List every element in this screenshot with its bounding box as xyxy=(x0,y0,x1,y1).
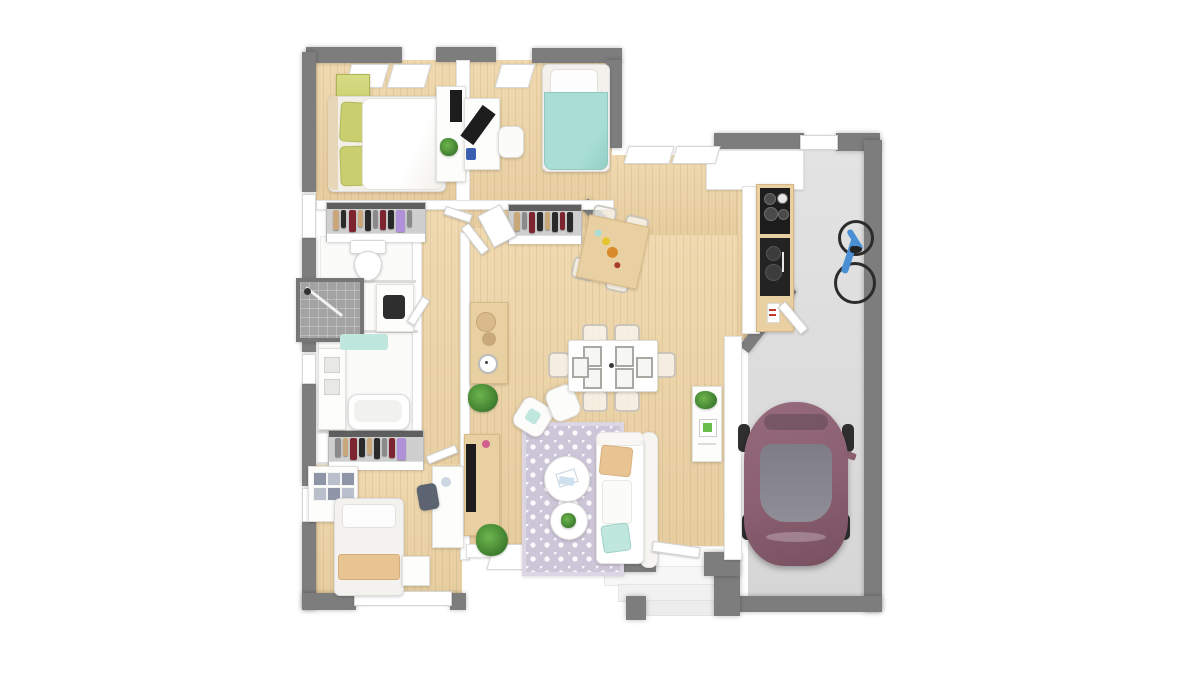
sideboard-frame xyxy=(699,419,717,437)
wall-garage-bottom xyxy=(738,596,882,612)
hall-decor-vase-1 xyxy=(476,312,496,332)
coffee-table-small xyxy=(550,502,588,540)
food-yellow xyxy=(601,237,610,246)
living-plant xyxy=(476,524,508,556)
dining-chair-bottom-2 xyxy=(614,390,640,412)
bathtub-basin xyxy=(354,400,402,422)
vanity-sink-2 xyxy=(324,379,340,395)
bedroom2-chair xyxy=(498,126,524,158)
window-living-north-2 xyxy=(671,146,720,164)
window-garage-north xyxy=(800,135,838,150)
sink-basin-2 xyxy=(765,264,782,281)
dining-chair-bottom-1 xyxy=(582,390,608,412)
wall-bath-hallway xyxy=(412,236,422,436)
wardrobe-bedroom2 xyxy=(508,204,582,244)
wardrobe-master xyxy=(326,202,426,242)
bedroom3-nightstand xyxy=(402,556,430,586)
porch-step-3 xyxy=(634,600,718,616)
dining-sideboard xyxy=(692,386,722,462)
place-setting-4 xyxy=(615,368,634,389)
window-left-wc xyxy=(302,194,316,238)
bedroom3-pillow xyxy=(342,504,396,528)
wall-garage-right xyxy=(864,140,882,612)
kitchen-sink xyxy=(760,238,790,296)
master-desk-plant xyxy=(440,138,458,156)
place-setting-2 xyxy=(615,346,634,367)
washing-machine-door xyxy=(383,295,405,319)
bathroom-vanity xyxy=(318,348,346,430)
car-rear-window xyxy=(764,414,828,430)
sideboard-plant xyxy=(695,391,717,409)
wall-top-garage-1 xyxy=(714,133,804,149)
bedroom3-chair xyxy=(416,482,440,511)
hall-plant xyxy=(468,384,498,412)
bedroom2-teal-duvet xyxy=(544,92,608,170)
coffee-table-large xyxy=(544,456,590,502)
bicycle-seat xyxy=(850,246,862,253)
wardrobe-bedroom2-back xyxy=(509,205,581,211)
wardrobe-bedroom3-back xyxy=(329,431,423,437)
car-body xyxy=(744,402,848,566)
master-bed-headboard xyxy=(328,96,338,190)
kitchen-breakfast-table xyxy=(576,214,650,289)
shower-head xyxy=(304,288,311,295)
bathtub xyxy=(348,394,410,430)
teal-bath-mat xyxy=(340,334,388,350)
car-hood-highlight xyxy=(766,532,826,542)
sofa-cushion-white xyxy=(602,480,632,524)
car-glasshouse xyxy=(760,444,832,522)
wall-top-1 xyxy=(306,47,402,63)
window-left-bath xyxy=(302,354,316,384)
bedroom2-laptop xyxy=(466,148,476,160)
dining-centerpiece xyxy=(609,363,614,368)
floor-plan-render xyxy=(0,0,1200,675)
master-bed-duvet xyxy=(362,98,444,190)
window-bedroom2 xyxy=(495,64,536,88)
bedroom3-desk-item xyxy=(441,477,451,487)
place-setting-5 xyxy=(572,357,589,378)
tv-console-flower xyxy=(482,440,490,448)
cooktop xyxy=(760,188,790,234)
tv xyxy=(466,444,476,512)
food-orange xyxy=(606,246,619,259)
wardrobe-bedroom2-ledge xyxy=(509,235,581,244)
hall-decor-vase-2 xyxy=(482,332,496,346)
wall-left-1 xyxy=(302,52,316,192)
hall-clock xyxy=(478,354,498,374)
wardrobe-bedroom3 xyxy=(328,430,424,470)
place-setting-6 xyxy=(636,357,653,378)
dining-chair-left xyxy=(548,352,570,378)
sink-faucet xyxy=(782,252,784,272)
wardrobe-master-back xyxy=(327,203,425,209)
hall-clock-center xyxy=(485,361,488,364)
food-teal-cup xyxy=(594,229,602,237)
coffee-table-plant xyxy=(561,513,576,528)
bedroom3-blanket xyxy=(338,554,400,580)
shower xyxy=(296,278,364,342)
bicycle-wheel-rear xyxy=(834,262,876,304)
washing-machine xyxy=(376,284,414,332)
porch-pillar xyxy=(626,596,646,620)
window-living-north-1 xyxy=(623,146,674,164)
sideboard-drawer-line xyxy=(698,443,716,445)
sofa-cushion-beige xyxy=(599,444,634,477)
window-master-2 xyxy=(387,64,432,88)
armchair-teal-pillow xyxy=(524,407,542,425)
vanity-sink-1 xyxy=(324,357,340,373)
dining-table xyxy=(568,340,658,392)
sink-basin-1 xyxy=(766,246,781,261)
wall-bottom-left-2 xyxy=(450,593,466,610)
sofa-cushion-teal xyxy=(600,522,632,554)
master-desk-monitor xyxy=(450,90,462,122)
sideboard-frame-art xyxy=(703,423,712,432)
food-red xyxy=(614,262,621,269)
